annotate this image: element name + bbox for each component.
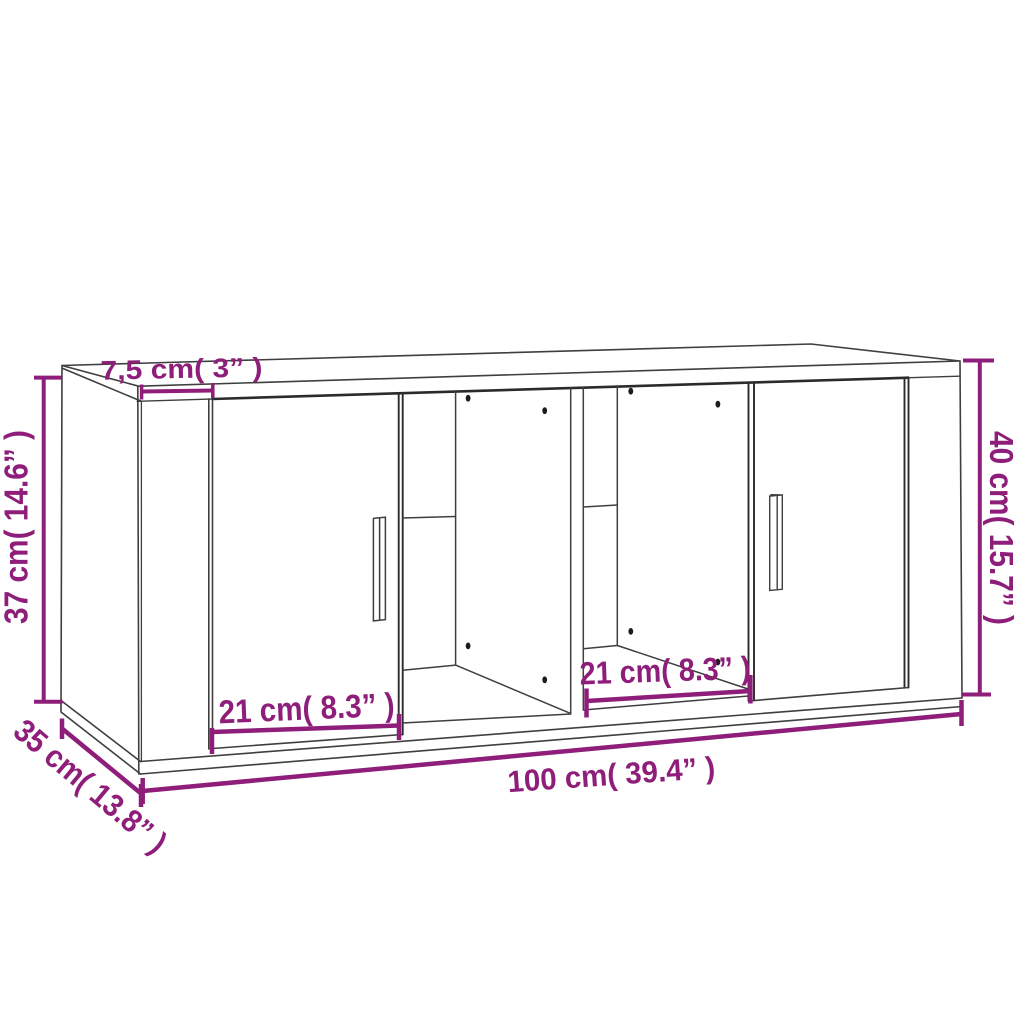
svg-text:37 cm( 14.6” ): 37 cm( 14.6” ) — [0, 430, 36, 624]
svg-text:7,5 cm( 3” ): 7,5 cm( 3” ) — [100, 352, 263, 385]
svg-text:21 cm( 8.3” ): 21 cm( 8.3” ) — [218, 686, 395, 731]
svg-text:21 cm( 8.3” ): 21 cm( 8.3” ) — [579, 650, 751, 692]
svg-text:40 cm( 15.7” ): 40 cm( 15.7” ) — [982, 431, 1019, 625]
